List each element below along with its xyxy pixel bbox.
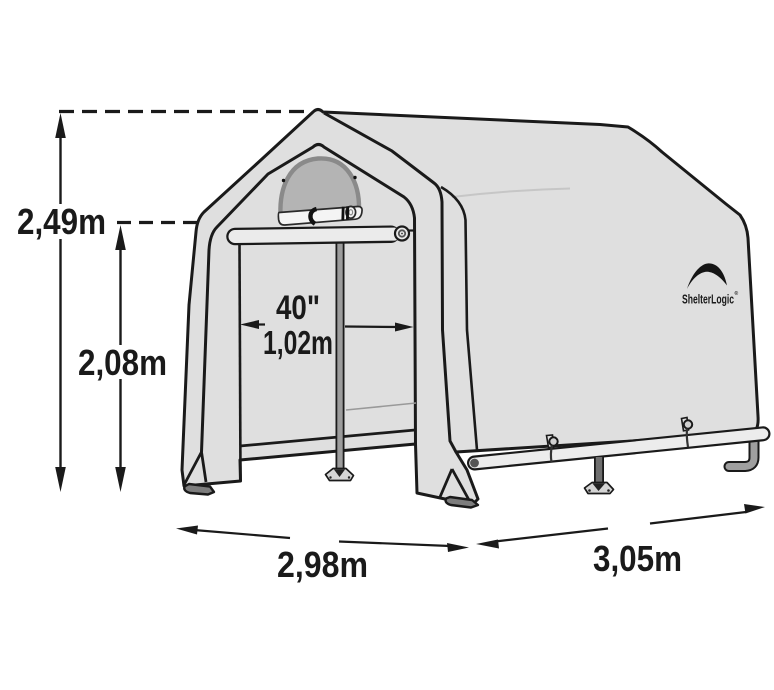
svg-text:2,49m: 2,49m (17, 201, 106, 242)
svg-text:3,05m: 3,05m (593, 538, 682, 579)
svg-text:ShelterLogic: ShelterLogic (682, 293, 734, 307)
svg-text:40": 40" (276, 289, 320, 327)
svg-text:2,08m: 2,08m (78, 342, 167, 383)
svg-text:®: ® (735, 290, 739, 297)
svg-text:2,98m: 2,98m (277, 544, 368, 585)
svg-text:1,02m: 1,02m (263, 324, 333, 361)
